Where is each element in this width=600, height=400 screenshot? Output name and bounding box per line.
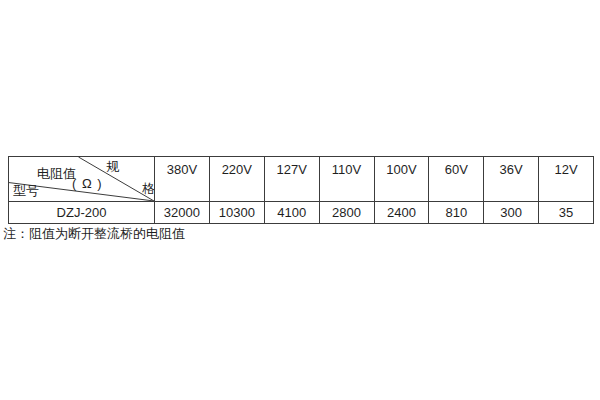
resistance-value-380v: 32000	[154, 201, 209, 223]
voltage-header-127v: 127V	[264, 157, 319, 201]
voltage-header-220v: 220V	[209, 157, 264, 201]
resistance-unit-label: ( Ω )	[72, 177, 103, 190]
voltage-header-380v: 380V	[154, 157, 209, 201]
resistance-spec-table: 规 格 电阻值 ( Ω ) 型号 380V 220V 127V 110V 100…	[8, 156, 594, 224]
spec-label-bottom-char: 格	[142, 182, 154, 195]
page: 规 格 电阻值 ( Ω ) 型号 380V 220V 127V 110V 100…	[0, 0, 600, 400]
resistance-value-36v: 300	[483, 201, 538, 223]
voltage-header-100v: 100V	[374, 157, 429, 201]
spec-label-top-char: 规	[106, 160, 119, 173]
model-cell: DZJ-200	[9, 201, 154, 223]
model-label: 型号	[13, 184, 39, 197]
footnote-text: 注：阻值为断开整流桥的电阻值	[3, 225, 185, 243]
resistance-value-220v: 10300	[209, 201, 264, 223]
resistance-label: 电阻值	[37, 167, 76, 180]
corner-header-cell: 规 格 电阻值 ( Ω ) 型号	[9, 157, 154, 201]
resistance-value-12v: 35	[538, 201, 593, 223]
resistance-value-60v: 810	[428, 201, 483, 223]
voltage-header-36v: 36V	[483, 157, 538, 201]
resistance-value-110v: 2800	[319, 201, 374, 223]
voltage-header-110v: 110V	[319, 157, 374, 201]
voltage-header-60v: 60V	[428, 157, 483, 201]
voltage-header-12v: 12V	[538, 157, 593, 201]
resistance-value-100v: 2400	[374, 201, 429, 223]
resistance-value-127v: 4100	[264, 201, 319, 223]
